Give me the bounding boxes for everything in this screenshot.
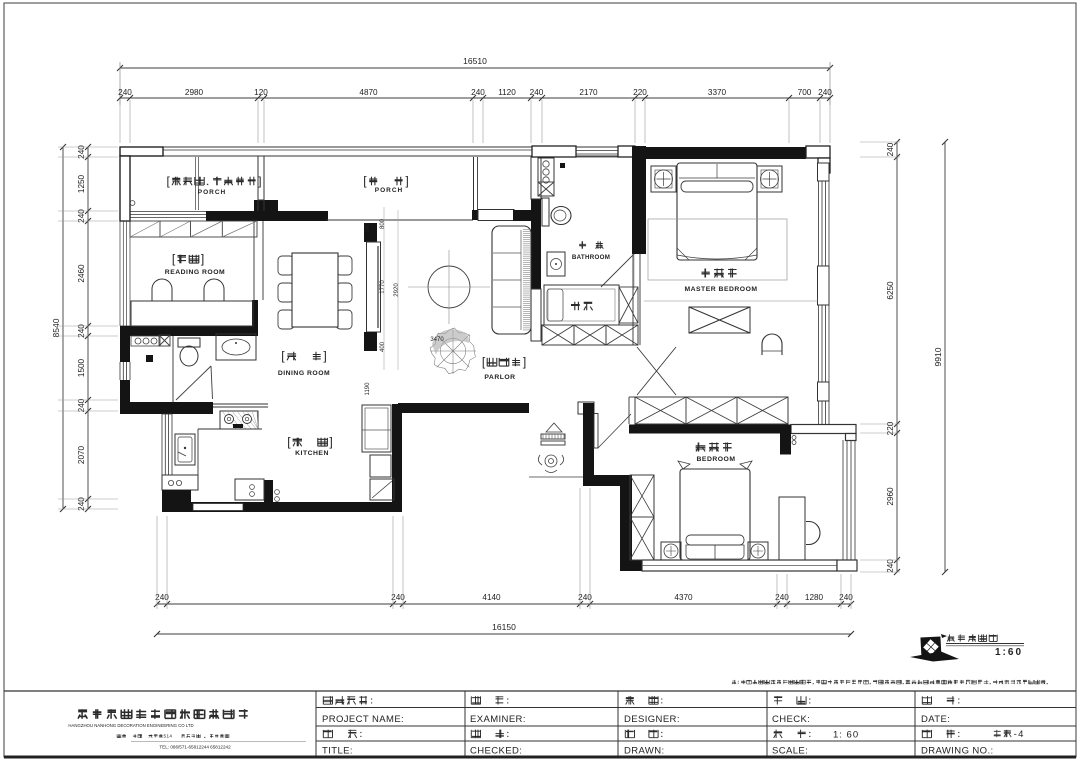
svg-text:]: ] [523, 355, 526, 369]
svg-text:-: - [1014, 729, 1017, 740]
svg-text:2460: 2460 [77, 264, 86, 283]
svg-text:TITLE:: TITLE: [322, 746, 353, 757]
svg-text:EXAMINER:: EXAMINER: [470, 714, 526, 725]
svg-text:PORCH: PORCH [198, 189, 226, 196]
svg-text:DRAWN:: DRAWN: [624, 746, 665, 757]
svg-text:1500: 1500 [77, 358, 86, 377]
svg-text:1:60: 1:60 [995, 647, 1023, 658]
svg-text:400: 400 [380, 341, 386, 352]
svg-text:3470: 3470 [430, 337, 444, 343]
svg-text:240: 240 [818, 88, 832, 97]
svg-text:240: 240 [77, 398, 86, 412]
svg-text:2170: 2170 [579, 88, 598, 97]
svg-text:CHECKED:: CHECKED: [470, 746, 522, 757]
svg-text:2960: 2960 [886, 487, 895, 506]
svg-text:4370: 4370 [674, 593, 693, 602]
svg-text:MASTER BEDROOM: MASTER BEDROOM [684, 286, 757, 293]
svg-text:1770: 1770 [380, 280, 386, 294]
svg-text:]: ] [405, 174, 408, 188]
svg-text:240: 240 [471, 88, 485, 97]
svg-text:8540: 8540 [51, 318, 61, 337]
svg-text:TEL: 086/571-65812244 65812: TEL: 086/571-65812244 65812242 [159, 745, 231, 750]
svg-text:DINING ROOM: DINING ROOM [278, 370, 330, 377]
svg-text:CHECK:: CHECK: [772, 714, 810, 725]
svg-text:6250: 6250 [886, 281, 895, 300]
svg-text:1250: 1250 [77, 174, 86, 193]
svg-text:2070: 2070 [77, 445, 86, 464]
svg-text:4870: 4870 [359, 88, 378, 97]
svg-text:4: 4 [1018, 729, 1023, 740]
svg-text:]: ] [323, 349, 326, 363]
svg-text:PARLOR: PARLOR [484, 374, 515, 381]
svg-text:240: 240 [886, 142, 895, 156]
svg-text:220: 220 [633, 88, 647, 97]
svg-text:DRAWING NO.:: DRAWING NO.: [921, 746, 994, 757]
svg-text:KITCHEN: KITCHEN [295, 450, 329, 457]
svg-text:DESIGNER:: DESIGNER: [624, 714, 680, 725]
svg-text:240: 240 [365, 222, 371, 233]
svg-text:4140: 4140 [482, 593, 501, 602]
svg-text:700: 700 [798, 88, 812, 97]
svg-text:1190: 1190 [365, 382, 371, 396]
svg-text:240: 240 [886, 559, 895, 573]
svg-text:240: 240 [118, 88, 132, 97]
svg-text:16150: 16150 [492, 622, 516, 632]
svg-text:2920: 2920 [394, 283, 400, 297]
svg-text:4: 4 [169, 734, 172, 739]
svg-text:2980: 2980 [185, 88, 204, 97]
svg-text:BEDROOM: BEDROOM [697, 456, 736, 463]
svg-text:]: ] [258, 174, 261, 188]
svg-text:1: 60: 1: 60 [833, 729, 859, 740]
svg-text:BATHROOM: BATHROOM [572, 254, 610, 261]
svg-text:1280: 1280 [805, 593, 824, 602]
svg-text:PORCH: PORCH [375, 187, 403, 194]
svg-text:]: ] [201, 252, 204, 266]
svg-text:DATE:: DATE: [921, 714, 950, 725]
svg-text:120: 120 [254, 88, 268, 97]
svg-text:READING ROOM: READING ROOM [165, 269, 225, 276]
svg-text:SCALE:: SCALE: [772, 746, 808, 757]
svg-text:HANGZHOU NANHONG DECORATION EN: HANGZHOU NANHONG DECORATION ENGINEERING … [68, 723, 193, 728]
svg-text:16510: 16510 [463, 56, 487, 66]
svg-text:240: 240 [530, 88, 544, 97]
svg-text:3370: 3370 [708, 88, 727, 97]
svg-text:]: ] [329, 435, 332, 449]
svg-text:9910: 9910 [933, 347, 943, 366]
svg-text:800: 800 [380, 218, 386, 229]
svg-text:PROJECT NAME:: PROJECT NAME: [322, 714, 404, 725]
svg-text:1120: 1120 [498, 88, 516, 97]
